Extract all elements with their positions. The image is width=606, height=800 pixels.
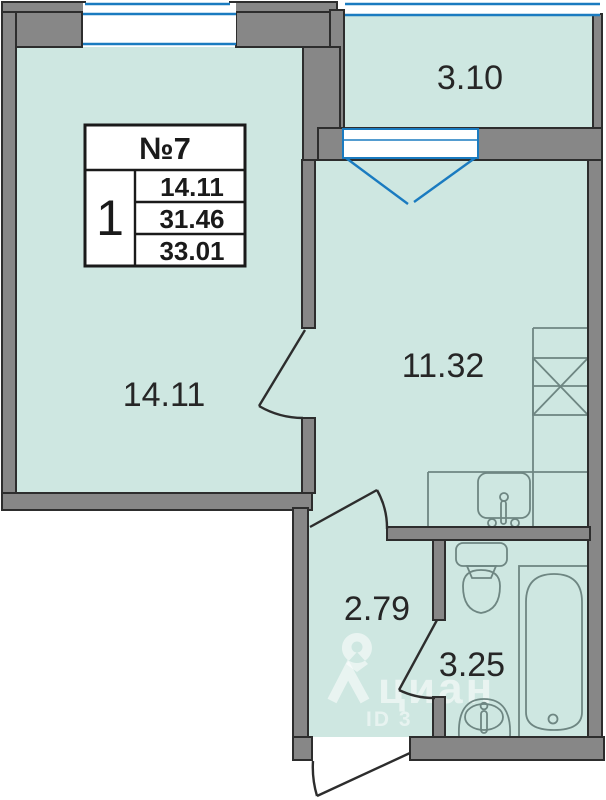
watermark-pin-hole [352, 642, 363, 653]
door-gap-living [302, 328, 315, 418]
apartment-area-value: 31.46 [159, 204, 224, 234]
watermark-id: ID 3 [366, 708, 413, 731]
kitchen-label: 11.32 [402, 347, 485, 385]
living-area-value: 14.11 [160, 172, 224, 202]
wall [433, 540, 445, 620]
apartment-info-box: №7 1 14.11 31.46 33.01 [85, 125, 245, 266]
floor-plan-page: циан ID 3 [0, 0, 606, 800]
wall [2, 12, 16, 510]
wall [302, 160, 315, 328]
wall [293, 737, 312, 760]
wall [302, 418, 315, 493]
wall [387, 527, 590, 540]
balcony-label: 3.10 [437, 59, 503, 97]
wall [236, 12, 330, 47]
balcony-railing [345, 4, 600, 15]
wall [433, 697, 445, 737]
entrance-door [313, 753, 410, 796]
wall [2, 2, 85, 12]
wall [588, 160, 602, 760]
hallway-label: 2.79 [344, 590, 410, 628]
wall [410, 737, 604, 760]
wall [593, 14, 602, 128]
total-area-value: 33.01 [159, 236, 224, 266]
wall [2, 493, 312, 510]
living-room-window [83, 3, 236, 45]
floor-plan: циан ID 3 [0, 0, 606, 800]
rooms-count: 1 [96, 190, 124, 246]
apartment-number: №7 [139, 131, 191, 166]
wall [293, 508, 308, 760]
living-room-label: 14.11 [123, 376, 206, 414]
bathroom-label: 3.25 [439, 646, 505, 684]
living-room-floor [16, 47, 303, 493]
wall [230, 2, 337, 12]
